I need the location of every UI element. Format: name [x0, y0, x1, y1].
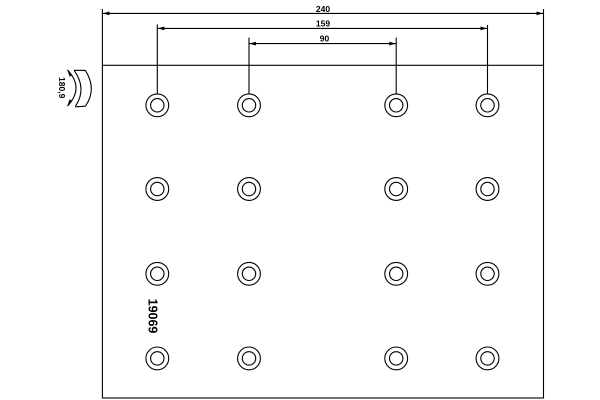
svg-text:90: 90	[320, 33, 330, 43]
svg-text:159: 159	[316, 18, 330, 28]
svg-text:180,9: 180,9	[57, 77, 67, 99]
svg-text:240: 240	[316, 4, 330, 14]
svg-text:19069: 19069	[146, 299, 160, 334]
